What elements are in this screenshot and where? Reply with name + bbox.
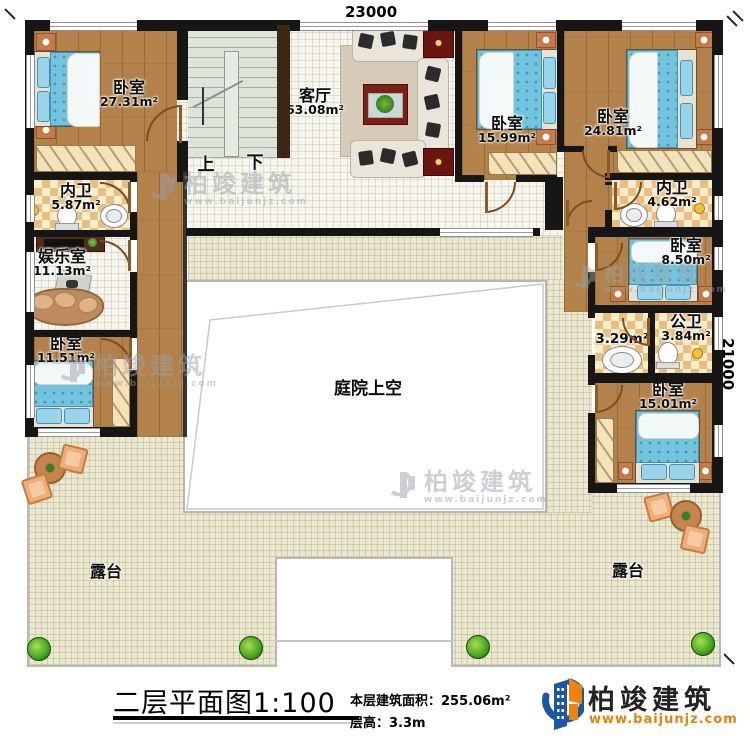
bed [635,410,700,484]
door-leaf [179,105,182,143]
courtyard-label: 庭院上空 [334,381,402,398]
floor-height-note: 层高：3.3m [350,712,426,731]
sink-bowl [610,352,634,368]
door-leaf [128,182,131,213]
wardrobe [36,145,136,172]
nightstand [695,129,713,145]
floor-plan-page: 23000 21000 卧室27.31m² 内卫5.87m² 娱乐 [0,0,750,745]
floor-area-note: 本层建筑面积：255.06m² [350,690,510,709]
room-label-entertainment: 娱乐室11.13m² [33,249,91,278]
terrace-right-label: 露台 [612,563,644,579]
terrace-cutout-line [275,640,453,642]
plan-title: 二层平面图1:100 [113,681,336,720]
room-label-bath-right: 内卫4.62m² [647,180,696,209]
dimension-tick [726,15,737,26]
wardrobe [617,150,712,173]
window [714,55,723,128]
dimension-tick [723,653,734,664]
plant-bush [239,636,263,660]
window [488,22,556,31]
terrace-cutout [275,557,453,667]
room-label-bedroom-r4: 卧室15.01m² [639,382,697,411]
title-underline [113,716,359,720]
tv [44,239,84,247]
side-cabinet [423,28,454,58]
stair-arrow [202,87,204,125]
window [26,365,35,418]
window [714,317,723,350]
nightstand [536,32,556,48]
dimension-tick [4,8,15,19]
stair-up-label: 上 [198,157,215,174]
window [440,228,533,237]
window [714,247,723,270]
lamp [692,348,703,359]
game-controller [66,280,78,288]
door-leaf [566,200,569,226]
door-leaf [595,243,598,271]
nightstand [536,129,556,145]
window [26,252,35,312]
room-label-bedroom-left: 卧室11.51m² [37,336,95,365]
window [50,22,137,31]
sofa [350,140,426,178]
window [38,428,100,437]
plant-bush [27,637,51,661]
plant-bush [466,635,490,659]
window [26,55,35,128]
room-label-living: 客厅63.08m² [286,88,344,117]
window [714,425,723,457]
dimension-width: 23000 [345,3,397,21]
bed [34,51,100,127]
door-leaf [595,385,598,413]
room-label-bedroom-topleft: 卧室27.31m² [100,80,158,109]
plant-bush [691,632,715,656]
courtyard-walkway [188,236,563,280]
room-label-bedroom-r1: 卧室15.99m² [478,116,536,145]
title-underline-2 [113,722,359,724]
dimension-tick [732,10,743,21]
staircase [188,31,277,158]
wardrobe [488,152,557,175]
door-leaf [485,182,488,213]
nightstand [618,462,633,480]
company-logo-icon [536,674,584,736]
door-leaf [129,338,132,369]
room-label-bedroom-r2: 卧室24.81m² [584,109,642,138]
wardrobe [596,418,614,483]
door-leaf [647,318,650,346]
terrace-chair [680,524,711,555]
plant-small [88,238,97,247]
corridor-right [547,280,592,513]
nightstand [36,33,56,51]
door-leaf [128,240,131,271]
plant [376,95,394,113]
stair-rail [224,51,239,157]
room-label-bath-left: 内卫5.87m² [51,183,100,212]
corridor-right-wood [564,232,588,312]
window [617,484,690,493]
nightstand [699,462,712,480]
corridor-left [137,150,183,437]
toilet-tank [656,362,680,369]
company-logo-website: www.baijunjz.com [589,712,738,727]
sofa-cushion [32,294,54,310]
door-leaf [607,150,610,178]
window [714,196,723,220]
sofa [417,58,449,152]
sink-bowl [626,208,642,222]
door-leaf [614,182,617,210]
window [622,22,696,31]
room-label-bath-public: 公卫3.84m² [661,314,710,343]
side-cabinet [423,148,454,176]
nightstand [610,286,626,302]
window [300,22,428,31]
room-label-bedroom-r3: 卧室8.50m² [661,238,710,267]
nightstand [695,32,713,48]
terrace-left-label: 露台 [90,564,122,580]
bed [30,360,94,428]
window [26,195,35,222]
stair-down-label: 下 [247,155,264,172]
